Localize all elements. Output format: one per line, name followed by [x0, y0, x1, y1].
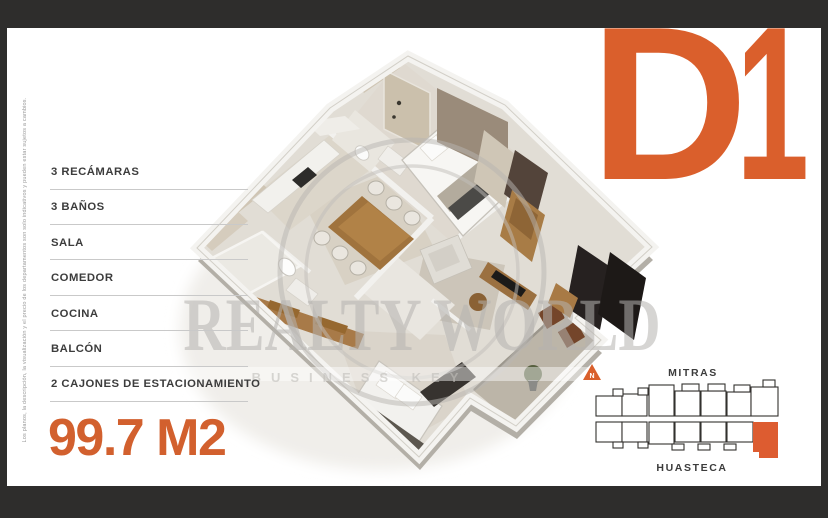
svg-text:HUASTECA: HUASTECA [656, 462, 727, 474]
svg-text:BUSINESS KEY: BUSINESS KEY [252, 370, 469, 385]
svg-text:MITRAS: MITRAS [668, 367, 718, 379]
svg-text:N: N [589, 373, 594, 380]
